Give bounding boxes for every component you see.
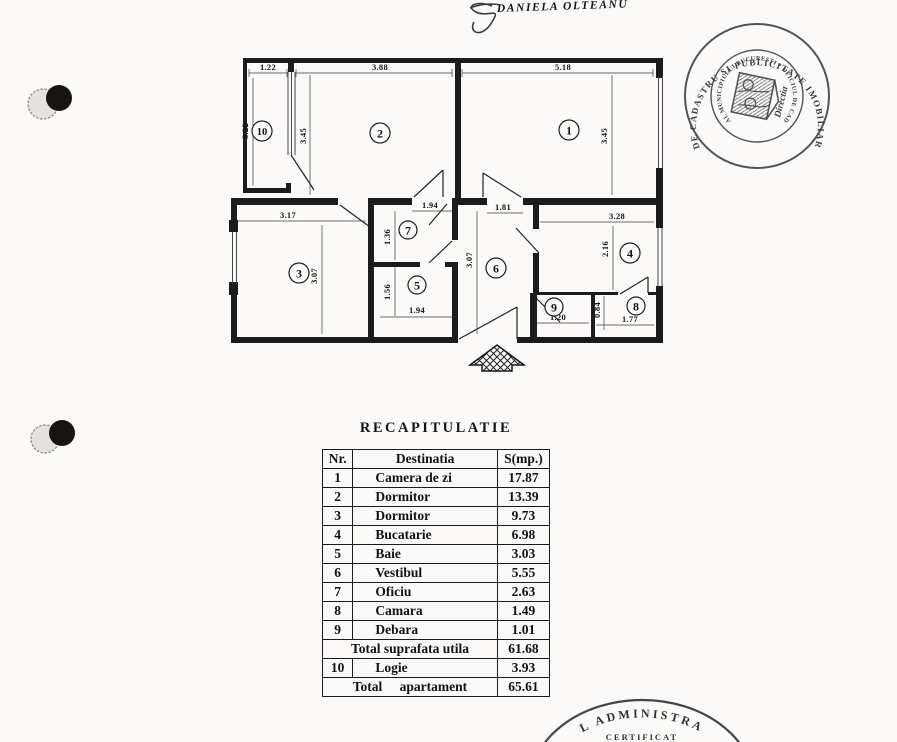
total-apartament-label: Total apartament [323, 678, 498, 697]
svg-text:6: 6 [493, 262, 499, 276]
cell-nr: 7 [323, 583, 353, 602]
cell-nr: 10 [323, 659, 353, 678]
room-number-badge: 10 [252, 121, 272, 141]
cell-destinatia: Oficiu [353, 583, 498, 602]
dimension-label: 1.56 [382, 284, 392, 300]
signature-scribble [470, 4, 500, 33]
header-destinatia: Destinatia [353, 450, 498, 469]
dimension-labels: 1.22 3.88 5.18 3.22 3.45 3.45 3.17 1.94 … [240, 62, 638, 324]
oval-stamp-inner-text: CERTIFICAT [606, 732, 678, 742]
table-row: 10 Logie 3.93 [323, 659, 550, 678]
room-number-badge: 7 [399, 221, 417, 239]
cell-area: 2.63 [497, 583, 549, 602]
cell-nr: 2 [323, 488, 353, 507]
header-area: S(mp.) [497, 450, 549, 469]
room-number-badge: 8 [627, 297, 645, 315]
signature: DANIELA OLTEANU [470, 0, 628, 33]
cell-nr: 3 [323, 507, 353, 526]
room-number-badge: 4 [620, 243, 640, 263]
cell-area: 1.01 [497, 621, 549, 640]
svg-text:8: 8 [633, 300, 639, 314]
dimension-label: 3.45 [298, 128, 308, 144]
dimension-label: 5.18 [555, 62, 571, 72]
dimension-label: 3.17 [280, 210, 297, 220]
room-number-badge: 5 [408, 276, 426, 294]
dimension-label: 2.16 [600, 241, 610, 257]
header-nr: Nr. [323, 450, 353, 469]
dimension-label: 3.88 [372, 62, 388, 72]
round-stamp: DE CADASTRU SI PUBLICITATE IMOBILIARA * … [0, 0, 829, 168]
cell-destinatia: Dormitor [353, 488, 498, 507]
cell-nr: 4 [323, 526, 353, 545]
dimension-label: 1.94 [409, 305, 426, 315]
table-header-row: Nr. Destinatia S(mp.) [323, 450, 550, 469]
svg-text:10: 10 [257, 127, 268, 138]
room-number-badge: 1 [559, 120, 579, 140]
svg-text:7: 7 [405, 224, 411, 238]
cell-destinatia: Logie [353, 659, 498, 678]
table-row: 3 Dormitor 9.73 [323, 507, 550, 526]
entrance-arrow-icon [470, 345, 524, 371]
room-number-badge: 2 [370, 123, 390, 143]
svg-text:9: 9 [551, 301, 557, 315]
table-row: 2 Dormitor 13.39 [323, 488, 550, 507]
scanned-document-page: DANIELA OLTEANU [0, 0, 897, 742]
dimension-label: 0.84 [592, 302, 602, 319]
total-utila-value: 61.68 [497, 640, 549, 659]
svg-text:3: 3 [296, 267, 302, 281]
dimension-label: 1.81 [495, 202, 511, 212]
floor-plan-walls [229, 58, 663, 343]
cell-destinatia: Camera de zi [353, 469, 498, 488]
dimension-label: 3.45 [599, 128, 609, 144]
svg-text:4: 4 [627, 247, 633, 261]
cell-area: 5.55 [497, 564, 549, 583]
svg-text:5: 5 [414, 279, 420, 293]
cell-area: 6.98 [497, 526, 549, 545]
svg-text:L ADMINISTRA: L ADMINISTRA [577, 706, 706, 735]
cell-area: 13.39 [497, 488, 549, 507]
punch-hole-bottom [31, 420, 75, 453]
cell-nr: 6 [323, 564, 353, 583]
dimension-label: 3.28 [609, 211, 625, 221]
cell-nr: 8 [323, 602, 353, 621]
cell-area: 3.93 [497, 659, 549, 678]
cell-destinatia: Dormitor [353, 507, 498, 526]
cell-nr: 9 [323, 621, 353, 640]
table-row: 8 Camara 1.49 [323, 602, 550, 621]
dimension-label: 3.07 [464, 252, 474, 269]
table-row: 9 Debara 1.01 [323, 621, 550, 640]
window-markers [233, 72, 663, 286]
punch-hole-top [28, 85, 72, 119]
cell-destinatia: Camara [353, 602, 498, 621]
table-total-row: Total suprafata utila 61.68 [323, 640, 550, 659]
total-apartament-value: 65.61 [497, 678, 549, 697]
table-row: 1 Camera de zi 17.87 [323, 469, 550, 488]
recap-section: RECAPITULATIE Nr. Destinatia S(mp.) 1 Ca… [322, 420, 550, 697]
signature-name: DANIELA OLTEANU [496, 0, 629, 15]
table-row: 4 Bucatarie 6.98 [323, 526, 550, 545]
room-number-badges: 10 2 1 3 7 5 6 4 [252, 120, 645, 316]
cell-destinatia: Vestibul [353, 564, 498, 583]
room-number-badge: 3 [289, 263, 309, 283]
dimension-label: 1.94 [422, 200, 439, 210]
room-number-badge: 9 [545, 298, 563, 316]
svg-text:DE CADASTRU SI PUBLICITATE IMO: DE CADASTRU SI PUBLICITATE IMOBILIARA * … [0, 0, 826, 151]
dimension-label: 1.22 [260, 62, 276, 72]
table-row: 6 Vestibul 5.55 [323, 564, 550, 583]
cell-area: 1.49 [497, 602, 549, 621]
table-row: 5 Baie 3.03 [323, 545, 550, 564]
svg-text:2: 2 [377, 127, 383, 141]
total-utila-label: Total suprafata utila [323, 640, 498, 659]
cell-area: 3.03 [497, 545, 549, 564]
room-number-badge: 6 [486, 258, 506, 278]
svg-text:1: 1 [566, 124, 572, 138]
table-total-row: Total apartament 65.61 [323, 678, 550, 697]
recap-title: RECAPITULATIE [322, 420, 550, 437]
cell-nr: 1 [323, 469, 353, 488]
dimension-label: 3.07 [309, 268, 319, 285]
dimension-label: 1.36 [382, 229, 392, 245]
recap-table: Nr. Destinatia S(mp.) 1 Camera de zi 17.… [322, 449, 550, 697]
oval-stamp-arc-text: L ADMINISTRA [577, 706, 706, 735]
bottom-oval-stamp: L ADMINISTRA CERTIFICAT [529, 700, 755, 742]
table-row: 7 Oficiu 2.63 [323, 583, 550, 602]
stamp-outer-ring-text: DE CADASTRU SI PUBLICITATE IMOBILIARA * … [0, 0, 826, 151]
cell-destinatia: Debara [353, 621, 498, 640]
cell-destinatia: Baie [353, 545, 498, 564]
cell-area: 17.87 [497, 469, 549, 488]
cell-destinatia: Bucatarie [353, 526, 498, 545]
cell-nr: 5 [323, 545, 353, 564]
dimension-label: 3.22 [240, 123, 250, 139]
cell-area: 9.73 [497, 507, 549, 526]
